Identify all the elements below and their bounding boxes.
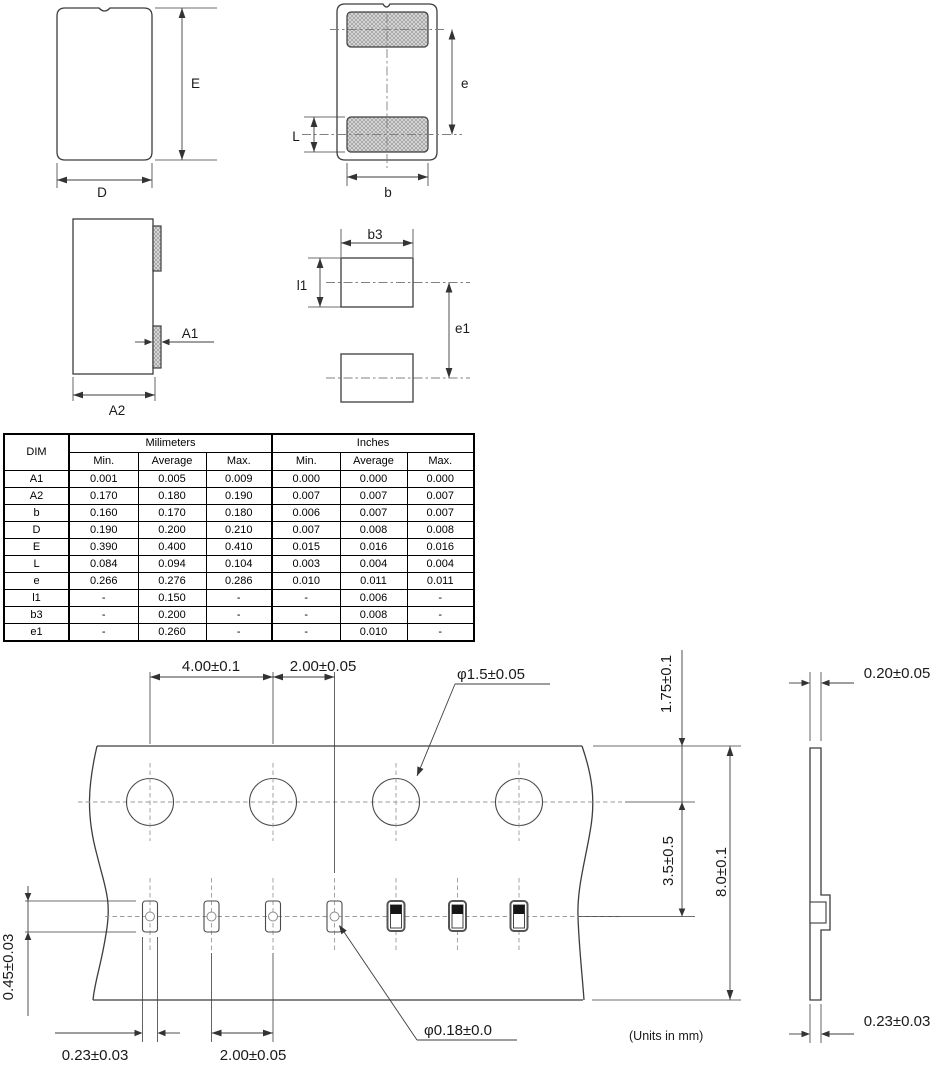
row-label: L [4, 556, 69, 573]
package-body-outline [57, 8, 152, 160]
table-row: E 0.390 0.400 0.410 0.015 0.016 0.016 [4, 539, 474, 556]
table-cell: 0.009 [206, 471, 272, 488]
pocket-center-hole [146, 912, 155, 921]
table-cell: 0.266 [69, 573, 138, 590]
row-label: b3 [4, 607, 69, 624]
callout-sprocket-hole [417, 684, 550, 776]
table-cell: - [407, 607, 474, 624]
dim-label-l1: l1 [297, 278, 308, 293]
table-cell: 0.000 [407, 471, 474, 488]
table-cell: - [272, 624, 340, 642]
dim-label-e1: e1 [455, 321, 470, 336]
table-cell: 0.007 [272, 522, 340, 539]
row-label: b [4, 505, 69, 522]
table-cell: 0.010 [272, 573, 340, 590]
table-cell: 0.000 [272, 471, 340, 488]
table-cell: 0.180 [138, 488, 206, 505]
table-row: b3 - 0.200 - - 0.008 - [4, 607, 474, 624]
dim-label-bottom-thickness: 0.23±0.03 [864, 1013, 931, 1030]
table-cell: 0.190 [206, 488, 272, 505]
table-cell: 0.004 [340, 556, 407, 573]
table-cell: - [272, 607, 340, 624]
dim-label-D: D [97, 185, 107, 200]
table-cell: 0.008 [407, 522, 474, 539]
table-cell: 0.180 [206, 505, 272, 522]
table-cell: 0.007 [407, 505, 474, 522]
dim-label-tape-width: 8.0±0.1 [713, 847, 730, 897]
table-cell: 0.104 [206, 556, 272, 573]
pocket-center-hole [269, 912, 278, 921]
table-row: e 0.266 0.276 0.286 0.010 0.011 0.011 [4, 573, 474, 590]
dim-label-A2: A2 [109, 403, 126, 418]
table-cell: 0.007 [340, 505, 407, 522]
table-cell: 0.286 [206, 573, 272, 590]
table-cell: - [272, 590, 340, 607]
datasheet-page: E D e L b [0, 0, 950, 1071]
tape-section-profile [810, 748, 830, 1000]
dimension-table: DIM Milimeters Inches Min. Average Max. … [3, 433, 475, 642]
table-cell: 0.200 [138, 607, 206, 624]
table-cell: 0.007 [407, 488, 474, 505]
table-cell: 0.200 [138, 522, 206, 539]
dim-label-b3: b3 [367, 227, 382, 242]
dim-label-L: L [292, 129, 300, 144]
dim-b [347, 163, 428, 186]
table-cell: 0.001 [69, 471, 138, 488]
table-cell: 0.016 [340, 539, 407, 556]
tape-section-view: 0.20±0.05 0.23±0.03 [789, 665, 930, 1043]
dim-label-center-hole-dia: φ0.18±0.0 [424, 1022, 492, 1039]
table-cell: - [206, 624, 272, 642]
dim-label-sprocket-pitch: 4.00±0.1 [182, 658, 240, 675]
table-header-millimeters: Milimeters [69, 434, 272, 453]
table-row: A1 0.001 0.005 0.009 0.000 0.000 0.000 [4, 471, 474, 488]
row-label: A1 [4, 471, 69, 488]
table-subheader: Max. [407, 453, 474, 471]
dim-A1 [135, 339, 214, 346]
table-cell: 0.011 [407, 573, 474, 590]
table-cell: - [69, 590, 138, 607]
table-cell: 0.006 [272, 505, 340, 522]
package-top-view: E D [57, 8, 217, 200]
loaded-pocket [449, 901, 466, 931]
table-cell: 0.400 [138, 539, 206, 556]
table-cell: 0.006 [340, 590, 407, 607]
table-subheader: Min. [69, 453, 138, 471]
table-cell: 0.390 [69, 539, 138, 556]
table-subheader: Average [138, 453, 206, 471]
row-label: e1 [4, 624, 69, 642]
package-side-view: A1 A2 [73, 219, 214, 418]
table-row: e1 - 0.260 - - 0.010 - [4, 624, 474, 642]
dim-label-pocket-pitch: 2.00±0.05 [220, 1047, 287, 1064]
dim-l1 [308, 258, 341, 307]
table-row: D 0.190 0.200 0.210 0.007 0.008 0.008 [4, 522, 474, 539]
table-cell: 0.094 [138, 556, 206, 573]
table-cell: 0.016 [407, 539, 474, 556]
table-cell: 0.410 [206, 539, 272, 556]
table-header-dim: DIM [4, 434, 69, 471]
table-cell: 0.210 [206, 522, 272, 539]
row-label: e [4, 573, 69, 590]
dim-A2 [73, 377, 155, 401]
side-body-outline [73, 219, 153, 374]
pocket-center-hole [330, 912, 339, 921]
dim-label-sprocket-hole-dia: φ1.5±0.05 [457, 666, 525, 683]
table-cell: 0.007 [340, 488, 407, 505]
table-header-inches: Inches [272, 434, 474, 453]
table-cell: - [69, 607, 138, 624]
table-cell: 0.007 [272, 488, 340, 505]
dim-tape-thickness-top [789, 672, 854, 741]
table-cell: 0.011 [340, 573, 407, 590]
table-cell: 0.084 [69, 556, 138, 573]
dim-E [155, 8, 217, 160]
row-label: D [4, 522, 69, 539]
row-label: l1 [4, 590, 69, 607]
table-row: b 0.160 0.170 0.180 0.006 0.007 0.007 [4, 505, 474, 522]
table-cell: - [407, 624, 474, 642]
dim-label-pocket-width: 0.23±0.03 [62, 1047, 129, 1064]
units-note: (Units in mm) [629, 1029, 703, 1043]
dim-label-e: e [461, 76, 469, 91]
table-row: A2 0.170 0.180 0.190 0.007 0.007 0.007 [4, 488, 474, 505]
tape-pockets [105, 878, 622, 953]
tape-section-pocket [810, 902, 826, 923]
dim-sprocket-pitch [150, 672, 335, 873]
dim-label-pocket-length: 0.45±0.03 [0, 934, 17, 1001]
land-pattern: b3 l1 e1 [297, 227, 470, 402]
package-pad-view: e L b [292, 4, 468, 200]
table-subheader: Average [340, 453, 407, 471]
dim-label-sprocket-to-pocket: 2.00±0.05 [290, 658, 357, 675]
row-label: E [4, 539, 69, 556]
loaded-pocket [511, 901, 528, 931]
table-cell: 0.150 [138, 590, 206, 607]
table-cell: 0.160 [69, 505, 138, 522]
table-cell: 0.015 [272, 539, 340, 556]
table-cell: 0.260 [138, 624, 206, 642]
table-cell: 0.005 [138, 471, 206, 488]
table-cell: 0.004 [407, 556, 474, 573]
table-cell: 0.170 [138, 505, 206, 522]
loaded-pocket [388, 901, 405, 931]
table-cell: 0.003 [272, 556, 340, 573]
dim-label-sprocket-to-pocket-line: 3.5±0.5 [660, 836, 677, 886]
dim-label-A1: A1 [182, 326, 199, 341]
table-cell: - [69, 624, 138, 642]
table-cell: 0.008 [340, 522, 407, 539]
dim-label-E: E [191, 76, 200, 91]
table-cell: 0.170 [69, 488, 138, 505]
table-cell: 0.190 [69, 522, 138, 539]
dim-pocket-width [55, 937, 180, 1042]
table-row: L 0.084 0.094 0.104 0.003 0.004 0.004 [4, 556, 474, 573]
table-cell: 0.010 [340, 624, 407, 642]
side-electrode-bottom [153, 326, 161, 368]
side-electrode-top [153, 226, 161, 271]
table-cell: - [206, 607, 272, 624]
dim-label-b: b [384, 185, 392, 200]
table-cell: 0.008 [340, 607, 407, 624]
table-cell: 0.276 [138, 573, 206, 590]
row-label: A2 [4, 488, 69, 505]
table-cell: 0.000 [340, 471, 407, 488]
dim-pocket-pitch [212, 953, 274, 1042]
dim-pocket-length [25, 886, 136, 1016]
dim-label-top-thickness: 0.20±0.05 [864, 665, 931, 682]
pocket-center-hole [207, 912, 216, 921]
table-row: l1 - 0.150 - - 0.006 - [4, 590, 474, 607]
sprocket-holes [78, 763, 622, 841]
table-subheader: Max. [206, 453, 272, 471]
carrier-tape-view: 4.00±0.1 2.00±0.05 φ1.5±0.05 1.75±0.1 3.… [0, 650, 741, 1064]
table-subheader: Min. [272, 453, 340, 471]
dim-label-edge-to-sprocket: 1.75±0.1 [658, 655, 675, 713]
table-cell: - [206, 590, 272, 607]
dim-tape-thickness-bottom [789, 1004, 854, 1043]
table-cell: - [407, 590, 474, 607]
